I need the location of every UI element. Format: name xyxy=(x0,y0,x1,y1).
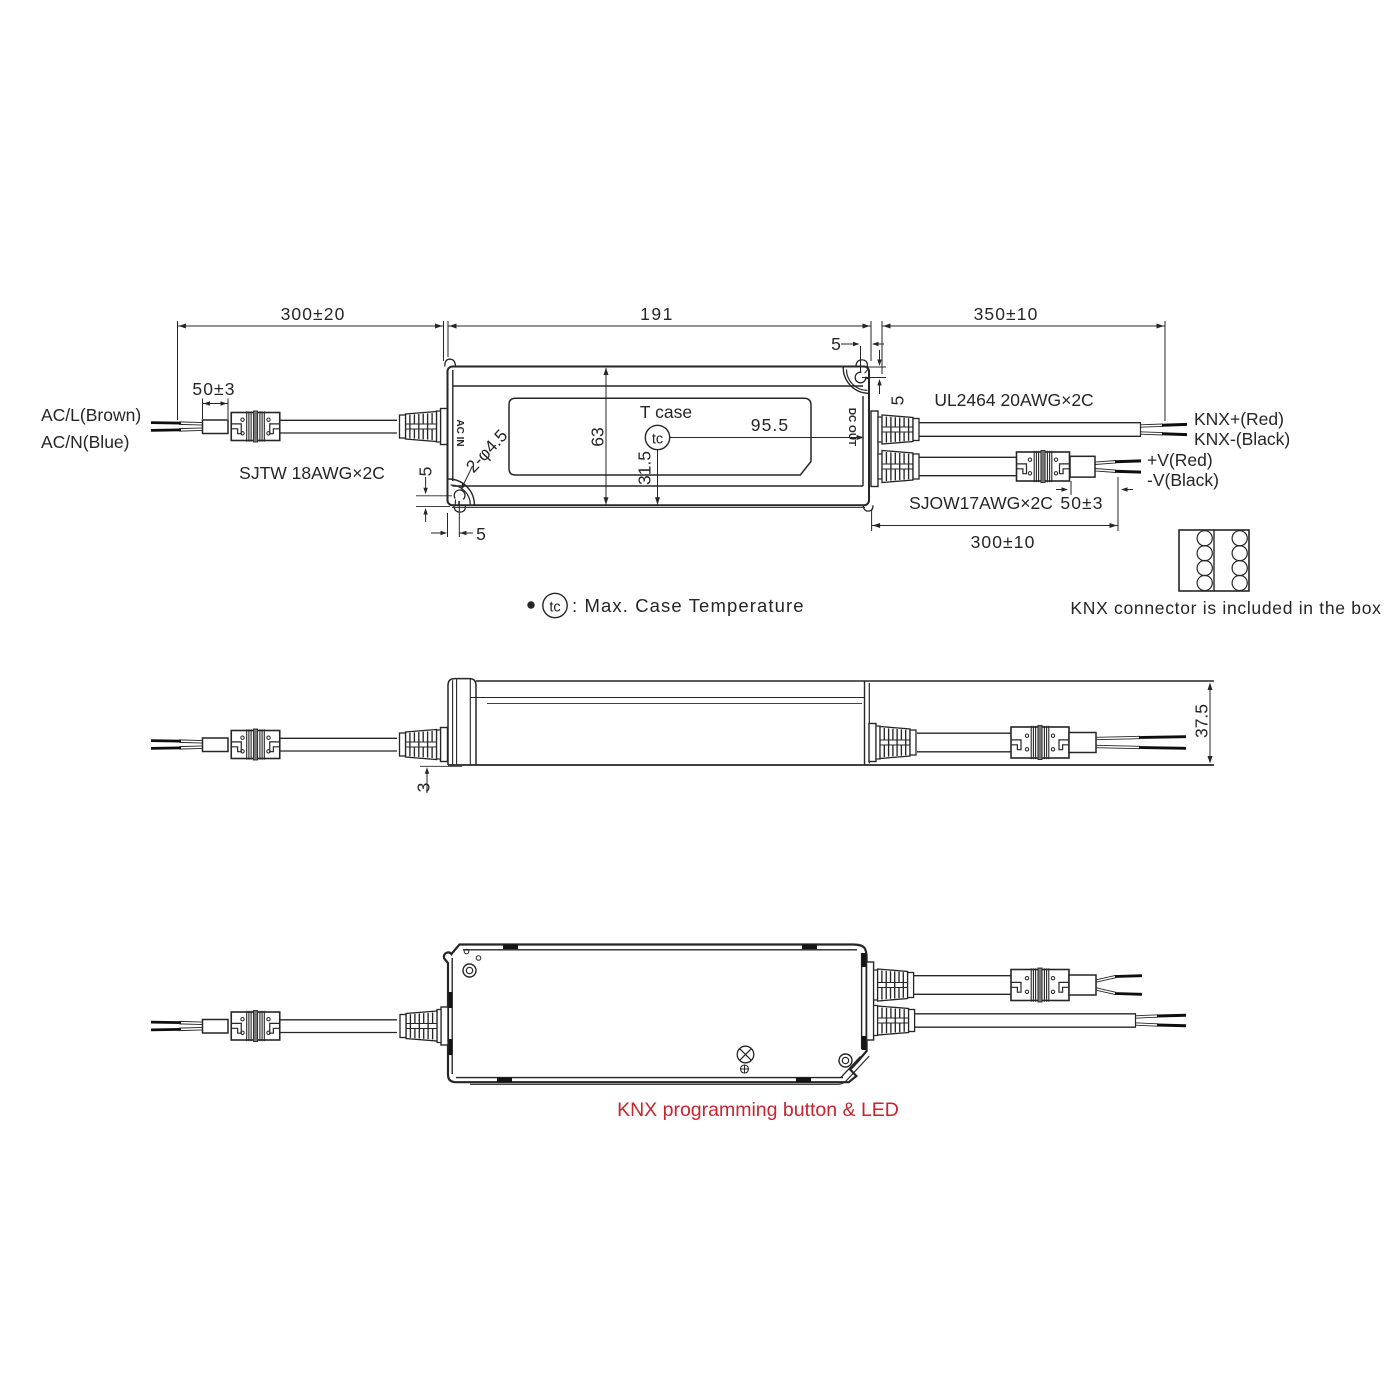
svg-text:SJOW17AWG×2C: SJOW17AWG×2C xyxy=(909,493,1053,513)
svg-text:KNX connector is included in t: KNX connector is included in the box xyxy=(1070,598,1381,618)
svg-text:50±3: 50±3 xyxy=(1060,493,1103,513)
svg-text:tc: tc xyxy=(549,600,560,616)
svg-text:191: 191 xyxy=(640,304,674,324)
svg-text:: Max. Case Temperature: : Max. Case Temperature xyxy=(572,595,805,616)
svg-text:KNX+(Red): KNX+(Red) xyxy=(1194,409,1284,429)
svg-text:95.5: 95.5 xyxy=(751,415,789,435)
svg-text:5: 5 xyxy=(416,467,436,477)
svg-text:UL2464 20AWG×2C: UL2464 20AWG×2C xyxy=(934,390,1093,410)
svg-text:-V(Black): -V(Black) xyxy=(1147,470,1219,490)
svg-text:T case: T case xyxy=(640,402,692,422)
svg-text:50±3: 50±3 xyxy=(192,379,235,399)
svg-text:3: 3 xyxy=(414,783,434,793)
svg-text:AC/N(Blue): AC/N(Blue) xyxy=(41,432,130,452)
svg-text:300±10: 300±10 xyxy=(971,532,1036,552)
svg-text:KNX programming button & LED: KNX programming button & LED xyxy=(617,1099,899,1121)
svg-text:+V(Red): +V(Red) xyxy=(1147,450,1213,470)
svg-text:AC/L(Brown): AC/L(Brown) xyxy=(41,405,141,425)
svg-text:SJTW 18AWG×2C: SJTW 18AWG×2C xyxy=(239,463,385,483)
svg-text:tc: tc xyxy=(652,432,663,448)
svg-text:5: 5 xyxy=(831,334,841,354)
svg-text:37.5: 37.5 xyxy=(1192,704,1212,738)
svg-text:5: 5 xyxy=(888,396,908,406)
svg-text:AC IN: AC IN xyxy=(454,419,465,446)
svg-text:31.5: 31.5 xyxy=(635,451,655,485)
svg-text:DC OUT: DC OUT xyxy=(846,408,857,446)
svg-text:63: 63 xyxy=(588,427,608,446)
svg-text:KNX-(Black): KNX-(Black) xyxy=(1194,429,1290,449)
svg-text:350±10: 350±10 xyxy=(974,304,1039,324)
svg-text:5: 5 xyxy=(476,524,486,544)
svg-text:300±20: 300±20 xyxy=(281,304,346,324)
